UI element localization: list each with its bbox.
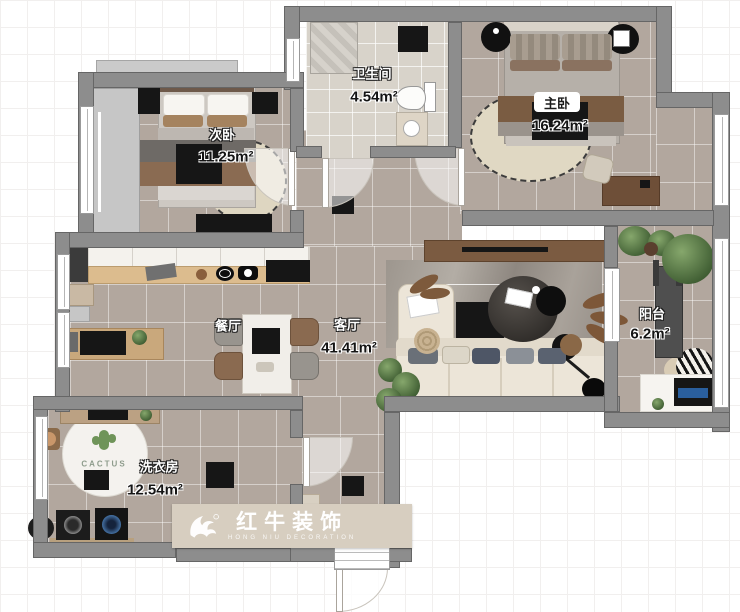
bed-master-accent-left <box>510 60 560 71</box>
toilet-bowl <box>396 86 426 110</box>
wall-vestibule-west-upper <box>290 410 303 438</box>
laundry-column-1 <box>84 470 109 490</box>
wall-balcony-south <box>604 412 730 428</box>
treadmill-handle-left <box>653 260 659 286</box>
front-door-leaf <box>336 568 343 612</box>
bathroom-door-leaf <box>322 158 329 208</box>
area-laundry: 12.54m² <box>127 482 183 499</box>
second-bedroom-cabinet <box>196 214 272 232</box>
entry-column <box>342 476 364 496</box>
label-living: 客厅 <box>334 315 360 334</box>
area-second-bedroom: 11.25m² <box>198 149 253 166</box>
master-nightstand-left <box>481 22 511 52</box>
bed-second-pillow-right <box>207 94 249 116</box>
label-bathroom: 卫生间 <box>352 64 391 83</box>
area-balcony: 6.2m² <box>630 326 669 343</box>
balcony-laptop-screen <box>678 388 708 398</box>
cactus-arm-right <box>108 434 116 443</box>
kitchen-bowl <box>196 269 207 280</box>
wall-laundry-north <box>33 396 303 410</box>
window-balcony-east <box>714 238 729 408</box>
fridge <box>266 260 310 282</box>
washer-1-drum <box>64 516 82 534</box>
wall-kitchen-north <box>55 232 304 248</box>
window-master-east <box>714 114 729 206</box>
nightstand-right <box>252 92 278 114</box>
washer-2-drum <box>102 515 121 534</box>
area-master-bedroom: 16.24m² <box>532 118 588 135</box>
laundry-desk-plant <box>140 409 152 421</box>
label-second-bedroom: 次卧 <box>209 125 235 144</box>
coffee-table-small <box>536 286 566 316</box>
sideboard-screen <box>80 331 126 355</box>
label-dining: 餐厅 <box>215 316 241 335</box>
bedroom2-door-leaf <box>288 148 295 206</box>
bed-second-pillow-left <box>163 94 205 116</box>
window-dining-west-1 <box>57 254 70 310</box>
balcony-sliding-door <box>604 268 620 342</box>
dining-table <box>242 314 292 394</box>
wall-balcony-west-lower <box>604 340 618 412</box>
balcony-pot <box>644 242 658 256</box>
kitchen-beige-cabinet <box>66 284 94 306</box>
wall-bedroom2-top <box>78 72 304 88</box>
sofa-knit-pillow <box>560 334 582 356</box>
wall-master-south <box>462 210 714 226</box>
wall-top <box>296 6 672 22</box>
wardrobe-handle <box>98 112 101 212</box>
sofa-pillow-3 <box>472 348 500 364</box>
laundry-door-leaf <box>303 437 310 487</box>
wall-bathroom-south-left <box>296 146 322 158</box>
master-desk <box>602 176 660 206</box>
window-laundry-west <box>35 416 48 500</box>
wall-balcony-west-upper <box>604 226 618 268</box>
tv-screen <box>462 247 548 252</box>
watermark-brand: 红牛装饰 <box>236 512 348 533</box>
label-laundry: 洗衣房 <box>139 457 178 476</box>
dining-chair-left-bottom <box>214 352 243 380</box>
bed-second-foot <box>158 186 254 200</box>
bed-master-pillow-left <box>510 34 560 60</box>
dining-centerpiece <box>252 328 280 354</box>
kitchen-pot-lid <box>244 269 252 277</box>
vanity-sink <box>403 120 420 137</box>
floor-master-extension <box>656 106 714 214</box>
kitchen-tall-cabinet <box>68 246 88 282</box>
area-living: 41.41m² <box>321 340 377 357</box>
watermark-banner: 红牛装饰 HONG NIU DECORATION <box>172 504 412 548</box>
front-door-swing <box>338 568 388 612</box>
wall-front-door-left <box>290 546 336 562</box>
bull-logo-icon <box>186 511 220 541</box>
label-master-bedroom: 主卧 <box>534 92 580 112</box>
wall-master-right-upper <box>656 6 672 106</box>
dining-chair-right-bottom <box>290 352 319 380</box>
bathroom-column <box>398 26 428 52</box>
sofa-cushion-gap-2 <box>500 358 502 396</box>
window-bedroom2-west <box>80 106 94 214</box>
stove-burner <box>216 266 234 281</box>
nightstand-left <box>138 88 160 114</box>
master-nightstand-left-dot <box>493 28 499 34</box>
master-door-leaf <box>458 148 465 206</box>
master-desk-item <box>640 180 650 188</box>
wicker-tray <box>414 328 440 354</box>
bed-master-pillow-right <box>562 34 612 60</box>
window-dining-west-2 <box>57 312 70 368</box>
balcony-palm <box>662 234 714 284</box>
shower-tray <box>310 22 358 74</box>
sofa-pillow-4 <box>506 348 534 364</box>
floor-plan: CACTUS <box>0 0 740 612</box>
sideboard-plant <box>132 330 147 345</box>
label-balcony: 阳台 <box>639 304 665 323</box>
wall-bath-master-divider <box>448 22 462 148</box>
master-nightstand-lamp <box>613 30 630 47</box>
sofa-pillow-2 <box>442 346 470 364</box>
bed-master-headboard <box>504 22 618 31</box>
window-bathroom-west <box>286 38 300 82</box>
bed-second-accent-pillow-left <box>163 115 203 127</box>
dining-deco <box>256 362 274 372</box>
watermark-subtitle: HONG NIU DECORATION <box>228 535 356 541</box>
area-bathroom: 4.54m² <box>350 89 398 106</box>
laundry-column-2 <box>206 462 234 488</box>
balcony-desk-plant <box>652 398 664 410</box>
wall-living-south <box>384 396 620 412</box>
cactus-rug-text: CACTUS <box>81 460 126 469</box>
wall-bedroom2-east-upper <box>290 88 304 152</box>
dining-chair-right-top <box>290 318 319 346</box>
cactus-arm-left <box>92 436 100 445</box>
bed-master-accent-right <box>562 60 612 71</box>
wall-bottom-left <box>33 542 176 558</box>
wall-bathroom-south-right <box>370 146 456 158</box>
